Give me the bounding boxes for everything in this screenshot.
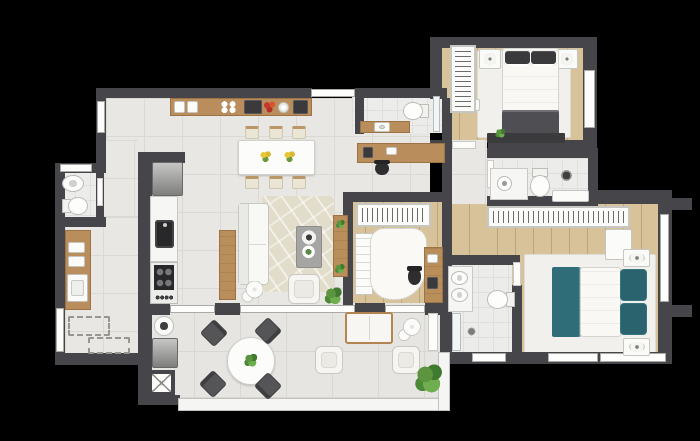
bath2-bench	[552, 190, 589, 202]
table-flowers-right	[283, 149, 296, 164]
balcony-glass-a	[170, 305, 215, 313]
lavabo-bottom-wall	[55, 217, 106, 227]
laundry-window	[56, 308, 64, 352]
master-bottom-window-a	[548, 353, 598, 362]
counter-sink-left	[174, 101, 185, 113]
ensuite-window	[472, 353, 506, 362]
kitchen-window	[311, 89, 355, 97]
counter-fruits	[263, 101, 276, 113]
floorplan-canvas	[0, 0, 700, 441]
master-bath-door	[513, 262, 521, 286]
lavabo-toilet	[61, 196, 89, 216]
counter-bowl	[278, 102, 289, 113]
balcony-plant	[413, 360, 445, 396]
dining-table	[238, 140, 315, 175]
ensuite-shower-glass	[452, 313, 461, 351]
living-armchair	[288, 274, 320, 304]
bedroom1-wardrobe	[450, 45, 476, 113]
bedroom2-chair	[404, 265, 425, 288]
top-wall-kitchen	[96, 88, 312, 98]
bath1-sink	[374, 122, 390, 132]
bedroom1-window	[584, 70, 595, 128]
bedroom2-top-wall	[343, 192, 452, 202]
laundry-item-a	[68, 242, 85, 253]
laundry-tank	[67, 274, 88, 302]
ensuite-toilet	[486, 289, 516, 310]
laundry-item-b	[68, 256, 85, 267]
living-plant	[323, 285, 344, 306]
coffee-table	[296, 226, 322, 268]
bedroom1-plant	[494, 128, 507, 138]
master-entry-floor	[452, 204, 480, 262]
stove	[150, 262, 178, 304]
counter-plates	[220, 100, 238, 114]
fridge	[152, 162, 183, 196]
ensuite-top-wall	[440, 255, 520, 265]
balcony-loveseat	[345, 312, 393, 344]
dining-chair	[269, 126, 283, 139]
balcony-armchair-left	[315, 346, 343, 374]
utility-shaft	[148, 370, 175, 396]
balcony-centerpiece	[243, 352, 259, 368]
counter-tray	[244, 100, 262, 114]
bedroom2-wardrobe	[356, 203, 431, 227]
gourmet-cabinet	[152, 338, 178, 368]
bath1-toilet	[402, 101, 430, 121]
dining-chair	[292, 126, 306, 139]
office-papers	[386, 147, 397, 155]
lavabo-sink	[62, 175, 84, 192]
balcony-stub-a	[138, 303, 170, 315]
master-right-stub-bottom	[672, 305, 692, 317]
bedroom1-door	[452, 141, 476, 149]
bath1-shower-glass	[433, 96, 440, 132]
dryer-outline	[88, 337, 130, 354]
bath2-basin	[497, 176, 512, 191]
gourmet-basin	[154, 316, 174, 336]
ensuite-basin-top	[451, 271, 468, 285]
counter-sink-right	[187, 101, 198, 113]
console-plant-top	[335, 219, 346, 229]
bbq-bottom-wall	[138, 395, 180, 405]
table-flowers-left	[259, 149, 272, 164]
master-bed-duvet	[580, 267, 621, 337]
living-left-window	[97, 101, 105, 133]
master-nightstand-bottom	[623, 338, 650, 356]
bedroom1-nightstand-left	[479, 49, 501, 69]
bath2-top-wall	[487, 148, 598, 158]
master-pillow-bottom	[620, 303, 647, 335]
balcony-rail-bottom	[178, 398, 450, 411]
master-right-stub-top	[672, 198, 692, 210]
balcony-end-door	[428, 313, 438, 351]
dining-chair	[269, 176, 283, 189]
balcony-stub-b	[215, 303, 240, 315]
balcony-side-table	[397, 317, 421, 343]
master-wardrobe	[487, 206, 630, 228]
tv-rack	[219, 230, 236, 300]
console-plant-bottom	[334, 263, 346, 274]
bedroom1-pillow-right	[531, 51, 556, 66]
master-right-window	[660, 214, 669, 302]
kitchen-sink	[155, 220, 174, 248]
master-bed-runner	[552, 267, 581, 337]
service-bottom-wall	[55, 353, 150, 365]
bedroom1-pillow-left	[505, 51, 530, 66]
lavabo-door	[97, 178, 103, 206]
bedroom1-nightstand-right	[556, 49, 578, 69]
washer-outline	[68, 316, 110, 336]
ensuite-basin-bottom	[451, 288, 468, 302]
dining-chair	[245, 126, 259, 139]
dining-chair	[292, 176, 306, 189]
bedroom2-monitor	[427, 277, 438, 289]
living-side-table	[241, 281, 263, 303]
bedroom2-papers	[427, 254, 438, 263]
sofa	[238, 203, 269, 285]
coffee-machine	[293, 100, 308, 114]
master-nightstand-top	[623, 249, 650, 267]
dining-chair	[245, 176, 259, 189]
bath2-shower	[559, 168, 574, 183]
office-laptop	[363, 147, 373, 158]
bath2-toilet	[529, 167, 551, 198]
office-chair	[371, 159, 393, 178]
ensuite-shower-drain	[466, 326, 477, 337]
lavabo-window	[60, 164, 92, 172]
master-pillow-top	[620, 269, 647, 301]
balcony-glass-b	[240, 305, 355, 313]
